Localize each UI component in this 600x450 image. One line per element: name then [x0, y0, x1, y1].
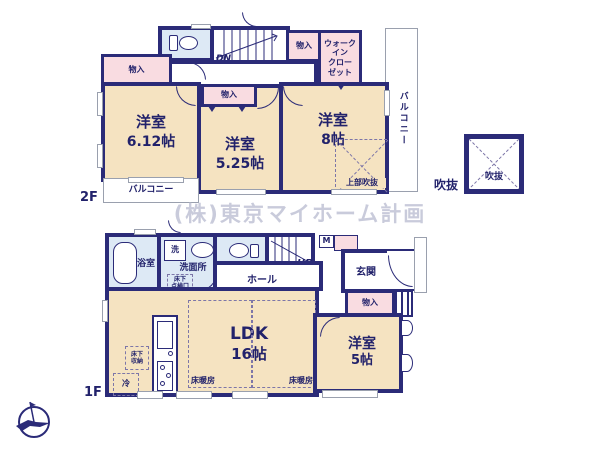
entrance-door-arc	[388, 255, 413, 287]
window	[134, 229, 156, 235]
burner-icon	[160, 365, 165, 370]
window	[322, 390, 378, 398]
balcony-2f-bottom-label: バルコニー	[104, 185, 198, 197]
washer-label: 洗	[171, 245, 179, 255]
window	[97, 92, 103, 116]
void-box-group: 吹抜 吹抜	[430, 130, 540, 200]
fridge-label: 冷	[122, 379, 130, 389]
door-arc-stairs-top	[242, 12, 257, 27]
kitchen-sink-icon	[157, 321, 173, 349]
closet-2f-mid: 物入	[201, 84, 257, 107]
room-8-name: 洋室	[318, 111, 348, 131]
kitchen-counter	[152, 315, 178, 395]
bathroom: 浴室	[105, 233, 161, 291]
walkin-closet: ウォーク イン クロー ゼット	[318, 30, 362, 86]
awning-window	[401, 320, 413, 336]
void-box-inner-label: 吹抜	[469, 172, 519, 184]
toilet-bowl-icon	[179, 36, 198, 50]
window	[232, 391, 268, 399]
entrance-hall: 玄関	[341, 249, 391, 293]
floor-label-2f: 2F	[80, 190, 98, 205]
hall-label: ホール	[247, 274, 277, 287]
window	[128, 177, 184, 183]
window	[216, 189, 266, 195]
underfloor-storage-label: 床下 収納	[131, 351, 143, 365]
room-525-name: 洋室	[225, 135, 255, 155]
room-612-name: 洋室	[136, 113, 166, 133]
awning-window	[401, 354, 413, 372]
floor-heating-left-label: 床暖房	[191, 376, 215, 386]
door-arc-backdoor	[168, 220, 181, 233]
entrance-doorway	[387, 249, 415, 291]
window	[191, 24, 211, 29]
kitchen-stove-icon	[157, 361, 173, 391]
room-525-size: 5.25帖	[216, 155, 265, 173]
toilet-tank-icon	[169, 35, 178, 51]
closet-1f-label: 物入	[362, 298, 378, 308]
entrance-label: 玄関	[356, 266, 376, 279]
upper-void-area: 上部吹抜	[335, 139, 387, 192]
balcony-right-label: バルコニー	[396, 91, 408, 146]
floor-heating-right-label: 床暖房	[289, 376, 313, 386]
washroom: 洗 洗面所 床下 点検口	[157, 233, 217, 291]
void-box-outer-label: 吹抜	[434, 178, 458, 194]
window	[97, 144, 103, 168]
window	[384, 90, 390, 116]
closet-door-mark	[238, 106, 246, 112]
bathroom-label: 浴室	[137, 259, 155, 271]
fridge-space: 冷	[113, 373, 139, 396]
floorplan-canvas: バルコニー DN 物入	[0, 0, 600, 450]
closet-2f-left-label: 物入	[129, 65, 145, 75]
void-box: 吹抜	[464, 134, 524, 194]
closet-2f-stairs: 物入	[286, 30, 322, 62]
closet-door-mark	[208, 106, 216, 112]
window	[102, 300, 108, 322]
stairs-2f: DN	[210, 26, 290, 64]
sink-icon	[191, 242, 214, 258]
walkin-closet-label: ウォーク イン クロー ゼット	[324, 39, 356, 77]
toilet-bowl-icon	[229, 243, 249, 258]
compass-icon	[10, 396, 58, 444]
floor-heating-right: 床暖房	[252, 300, 316, 388]
burner-icon	[160, 381, 165, 386]
burner-icon	[166, 373, 171, 378]
washer-icon: 洗	[164, 240, 186, 261]
window	[331, 189, 377, 195]
window	[176, 391, 212, 399]
kitchen-faucet-icon	[168, 351, 173, 356]
underfloor-storage: 床下 収納	[125, 346, 149, 370]
toilet-tank-icon	[250, 244, 259, 258]
upper-void-label: 上部吹抜	[338, 178, 386, 188]
closet-2f-stairs-label: 物入	[296, 41, 312, 51]
room-5-name: 洋室	[348, 335, 376, 353]
closet-door-mark	[337, 84, 345, 90]
entrance-porch	[414, 237, 427, 293]
room-612-size: 6.12帖	[127, 133, 176, 151]
meter-box-label: M	[323, 236, 331, 246]
floor-heating-left: 床暖房	[188, 300, 252, 388]
meter-box: M	[319, 235, 334, 248]
floor-label-1f: 1F	[84, 385, 102, 400]
room-5-size: 5帖	[351, 353, 373, 370]
window	[137, 391, 163, 399]
floor-1f-plan: 浴室 洗 洗面所 床下 点検口	[0, 225, 600, 450]
ldk-room: LDK 16帖 床暖房 床暖房 床下 収納	[105, 287, 319, 397]
closet-2f-mid-label: 物入	[221, 90, 237, 100]
bathtub-icon	[113, 242, 137, 284]
